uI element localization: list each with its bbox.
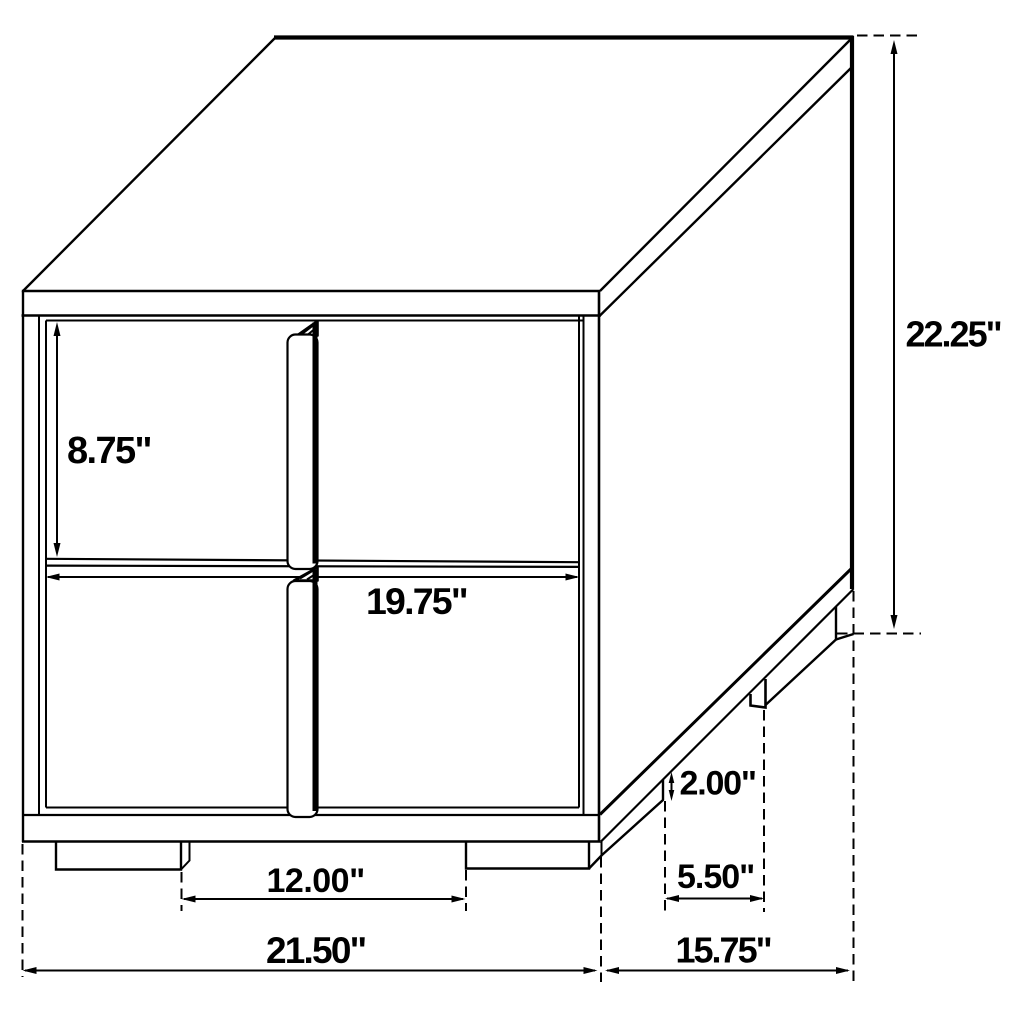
svg-text:12.00": 12.00"	[267, 862, 365, 900]
svg-text:5.50": 5.50"	[677, 858, 754, 896]
svg-text:22.25": 22.25"	[906, 314, 1001, 355]
svg-text:2.00": 2.00"	[680, 765, 756, 803]
svg-text:8.75": 8.75"	[67, 430, 151, 472]
svg-text:19.75": 19.75"	[366, 580, 467, 622]
svg-text:15.75": 15.75"	[676, 930, 771, 971]
svg-text:21.50": 21.50"	[266, 930, 366, 971]
